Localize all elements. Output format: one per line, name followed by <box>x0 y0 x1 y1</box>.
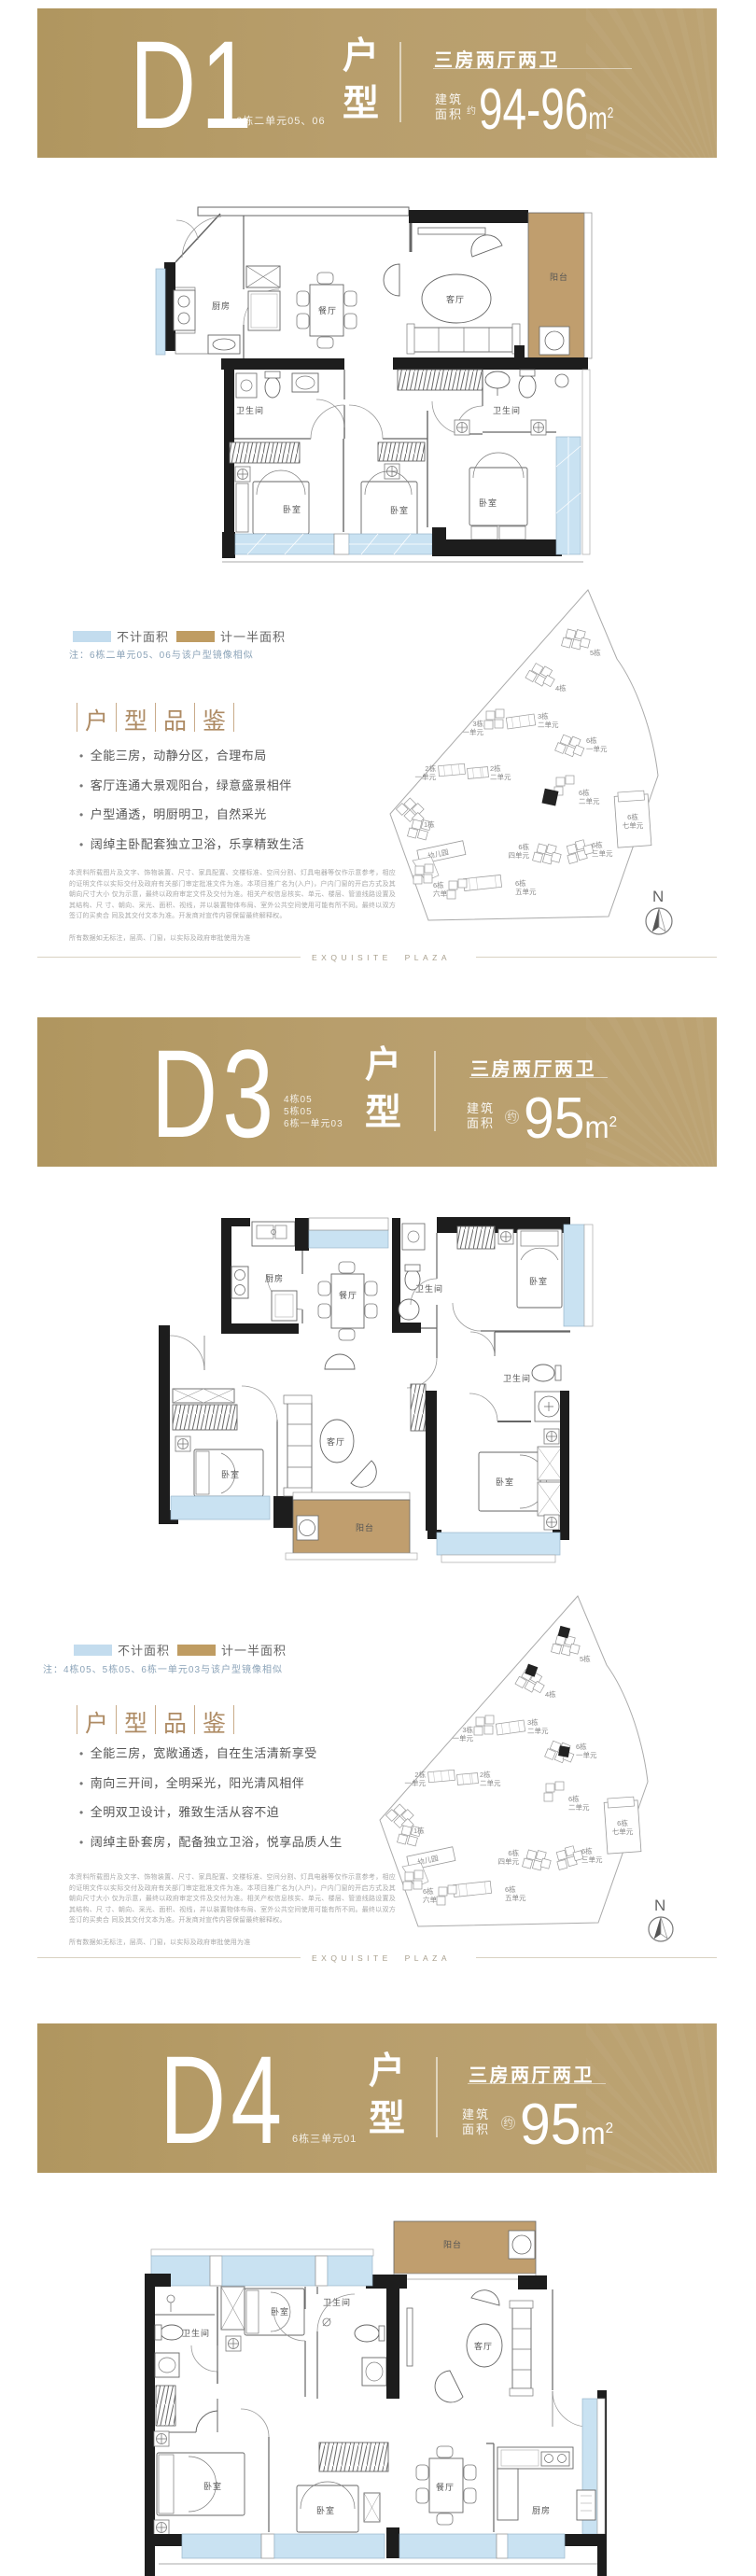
svg-text:卫生间: 卫生间 <box>236 405 264 415</box>
svg-text:6栋: 6栋 <box>586 735 597 745</box>
svg-text:卫生间: 卫生间 <box>182 2328 210 2338</box>
svg-text:阳台: 阳台 <box>356 1522 374 1533</box>
svg-text:卧室: 卧室 <box>316 2505 335 2515</box>
svg-text:卧室: 卧室 <box>221 1469 240 1479</box>
svg-text:四单元: 四单元 <box>509 850 530 860</box>
svg-text:卧室: 卧室 <box>496 1477 514 1487</box>
svg-text:6栋: 6栋 <box>592 840 603 849</box>
svg-text:6栋: 6栋 <box>518 842 529 851</box>
svg-text:三单元: 三单元 <box>592 848 613 858</box>
svg-text:餐厅: 餐厅 <box>318 305 337 315</box>
svg-text:卧室: 卧室 <box>283 504 301 514</box>
svg-text:4栋: 4栋 <box>555 683 567 693</box>
svg-text:卫生间: 卫生间 <box>493 405 521 415</box>
svg-text:5栋: 5栋 <box>590 648 601 657</box>
svg-text:6栋: 6栋 <box>579 788 590 797</box>
svg-text:N: N <box>654 1897 665 1914</box>
svg-text:6栋: 6栋 <box>515 878 526 888</box>
svg-text:一单元: 一单元 <box>415 772 437 781</box>
svg-text:一单元: 一单元 <box>586 744 608 753</box>
svg-text:6栋: 6栋 <box>627 812 638 821</box>
svg-text:厨房: 厨房 <box>532 2505 551 2515</box>
svg-text:餐厅: 餐厅 <box>339 1290 357 1300</box>
svg-text:二单元: 二单元 <box>579 796 600 805</box>
svg-text:3栋: 3栋 <box>472 719 483 728</box>
svg-text:卧室: 卧室 <box>390 505 409 515</box>
svg-text:五单元: 五单元 <box>515 887 537 896</box>
svg-text:2栋: 2栋 <box>425 763 436 773</box>
svg-text:餐厅: 餐厅 <box>436 2482 455 2492</box>
svg-text:2栋: 2栋 <box>490 763 501 773</box>
svg-text:1栋: 1栋 <box>424 819 435 829</box>
svg-text:厨房: 厨房 <box>265 1273 284 1283</box>
svg-text:一单元: 一单元 <box>463 727 484 736</box>
svg-text:客厅: 客厅 <box>446 294 465 304</box>
svg-text:N: N <box>652 888 664 905</box>
svg-text:阳台: 阳台 <box>550 272 568 282</box>
svg-text:卧室: 卧室 <box>479 497 497 508</box>
svg-text:客厅: 客厅 <box>327 1436 345 1447</box>
svg-text:二单元: 二单元 <box>538 720 559 729</box>
svg-text:阳台: 阳台 <box>443 2239 462 2249</box>
svg-text:二单元: 二单元 <box>490 772 511 781</box>
svg-text:厨房: 厨房 <box>212 301 231 311</box>
svg-text:6栋: 6栋 <box>433 880 444 889</box>
svg-text:卧室: 卧室 <box>529 1276 548 1286</box>
svg-text:3栋: 3栋 <box>538 711 549 721</box>
svg-text:卧室: 卧室 <box>203 2481 222 2491</box>
svg-text:客厅: 客厅 <box>474 2341 493 2351</box>
svg-text:七单元: 七单元 <box>623 820 644 830</box>
svg-text:卫生间: 卫生间 <box>503 1373 531 1383</box>
